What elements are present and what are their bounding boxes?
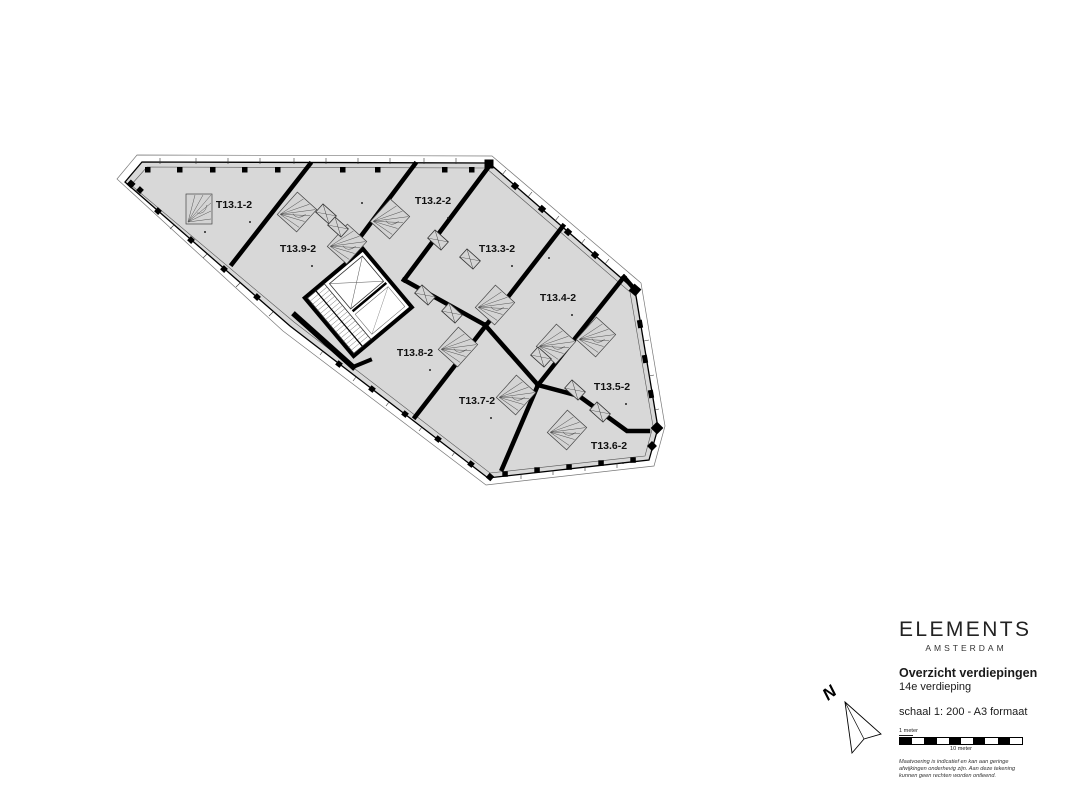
- north-label: N: [819, 681, 841, 704]
- unit-label-t13-6-2: T13.6-2: [591, 440, 627, 452]
- disclaimer-line: Maatvoering is indicatief en kan aan ger…: [899, 759, 1019, 766]
- sheet-scale: schaal 1: 200 - A3 formaat: [899, 706, 1033, 718]
- brand-logo: ELEMENTS: [899, 618, 1033, 642]
- sheet-subtitle: 14e verdieping: [899, 681, 1033, 693]
- sheet-title: Overzicht verdiepingen: [899, 666, 1033, 680]
- scale-bar-start-line: [899, 735, 913, 736]
- scale-bar-end-label: 10 meter: [899, 746, 1023, 752]
- unit-label-t13-1-2: T13.1-2: [216, 199, 252, 211]
- title-block: ELEMENTS AMSTERDAM Overzicht verdiepinge…: [899, 618, 1033, 780]
- brand-sublogo: AMSTERDAM: [899, 643, 1033, 653]
- scale-bar: 1 meter 10 meter: [899, 728, 1023, 752]
- disclaimer-line: afwijkingen onderhevig zijn. Aan deze te…: [899, 766, 1019, 773]
- unit-label-t13-8-2: T13.8-2: [397, 347, 433, 359]
- disclaimer: Maatvoering is indicatief en kan aan ger…: [899, 759, 1019, 780]
- disclaimer-line: kunnen geen rechten worden ontleend.: [899, 773, 1019, 780]
- unit-label-t13-4-2: T13.4-2: [540, 292, 576, 304]
- north-arrow: N: [819, 681, 881, 753]
- drawing-sheet: T13.1-2 T13.2-2 T13.3-2 T13.4-2 T13.5-2 …: [0, 0, 1092, 785]
- scale-bar-segments: [899, 737, 1023, 745]
- unit-label-t13-2-2: T13.2-2: [415, 195, 451, 207]
- unit-label-t13-5-2: T13.5-2: [594, 381, 630, 393]
- unit-label-t13-7-2: T13.7-2: [459, 395, 495, 407]
- north-arrow-kite: [845, 702, 881, 753]
- unit-label-t13-9-2: T13.9-2: [280, 243, 316, 255]
- unit-label-t13-3-2: T13.3-2: [479, 243, 515, 255]
- scale-bar-start-label: 1 meter: [899, 728, 1023, 734]
